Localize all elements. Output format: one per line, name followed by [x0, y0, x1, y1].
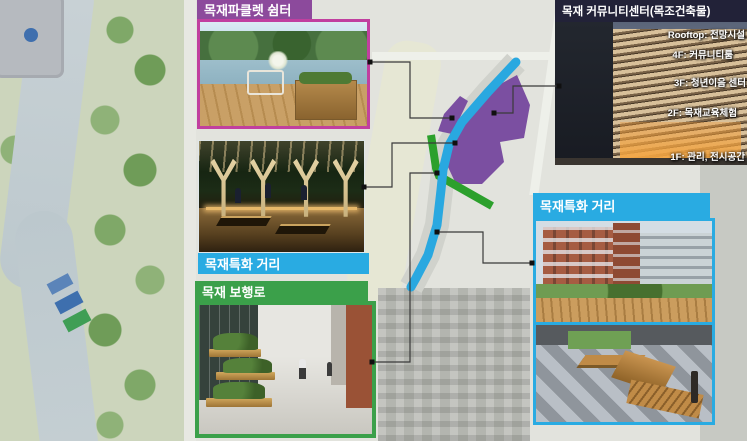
connector-dot — [492, 111, 497, 116]
connector-dot — [450, 116, 455, 121]
connector-dot — [368, 60, 373, 65]
connector-dot — [435, 171, 440, 176]
connector-dot — [435, 230, 440, 235]
connector-walkway — [372, 173, 437, 362]
connector-street-right — [437, 232, 532, 263]
connector-dot — [530, 261, 535, 266]
connector-parklet — [370, 62, 452, 118]
connector-community — [494, 86, 559, 113]
connector-dot — [362, 185, 367, 190]
connector-dot — [453, 141, 458, 146]
callout-connectors — [0, 0, 747, 441]
connector-dot — [370, 360, 375, 365]
connector-dot — [557, 84, 562, 89]
slide-canvas: 목재파클렛 쉼터 목재특화 거리 목재 보행로 — [0, 0, 747, 441]
